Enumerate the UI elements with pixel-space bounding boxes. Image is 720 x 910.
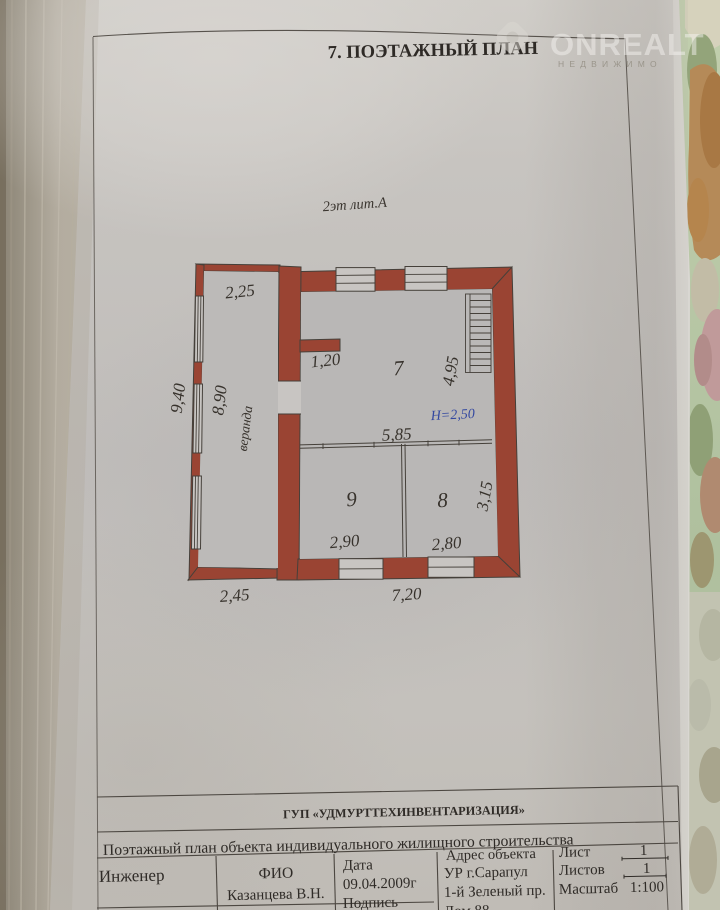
- svg-text:ФИО: ФИО: [258, 865, 293, 883]
- svg-text:Листов: Листов: [559, 862, 605, 879]
- svg-text:Н=2,50: Н=2,50: [429, 407, 475, 424]
- svg-text:1: 1: [643, 861, 651, 877]
- svg-text:НЕДВИЖИМО: НЕДВИЖИМО: [558, 59, 662, 69]
- svg-text:Подпись: Подпись: [343, 895, 399, 910]
- svg-text:7,20: 7,20: [391, 584, 423, 605]
- svg-text:1: 1: [640, 843, 648, 859]
- svg-text:2,25: 2,25: [224, 281, 256, 303]
- svg-text:09.04.2009г: 09.04.2009г: [343, 875, 417, 893]
- svg-text:Адрес объекта: Адрес объекта: [446, 846, 537, 864]
- svg-text:2,45: 2,45: [219, 585, 250, 606]
- svg-text:9,40: 9,40: [167, 382, 190, 414]
- svg-text:2,80: 2,80: [431, 533, 463, 555]
- svg-text:УР г.Сарапул: УР г.Сарапул: [444, 864, 529, 882]
- svg-text:2,90: 2,90: [329, 531, 361, 553]
- svg-text:1,20: 1,20: [310, 349, 342, 371]
- svg-text:8,90: 8,90: [208, 384, 231, 416]
- svg-text:1:100: 1:100: [630, 879, 665, 896]
- svg-text:Инженер: Инженер: [99, 866, 165, 886]
- svg-text:1-й Зеленый пр.: 1-й Зеленый пр.: [444, 883, 546, 901]
- svg-text:ONREALT: ONREALT: [550, 27, 705, 62]
- svg-text:Масштаб: Масштаб: [559, 881, 619, 898]
- svg-text:Дата: Дата: [343, 857, 374, 874]
- svg-text:5,85: 5,85: [381, 424, 412, 445]
- svg-text:Дом 88: Дом 88: [444, 903, 490, 910]
- svg-text:Казанцева В.Н.: Казанцева В.Н.: [227, 886, 325, 904]
- svg-text:Лист: Лист: [559, 844, 591, 861]
